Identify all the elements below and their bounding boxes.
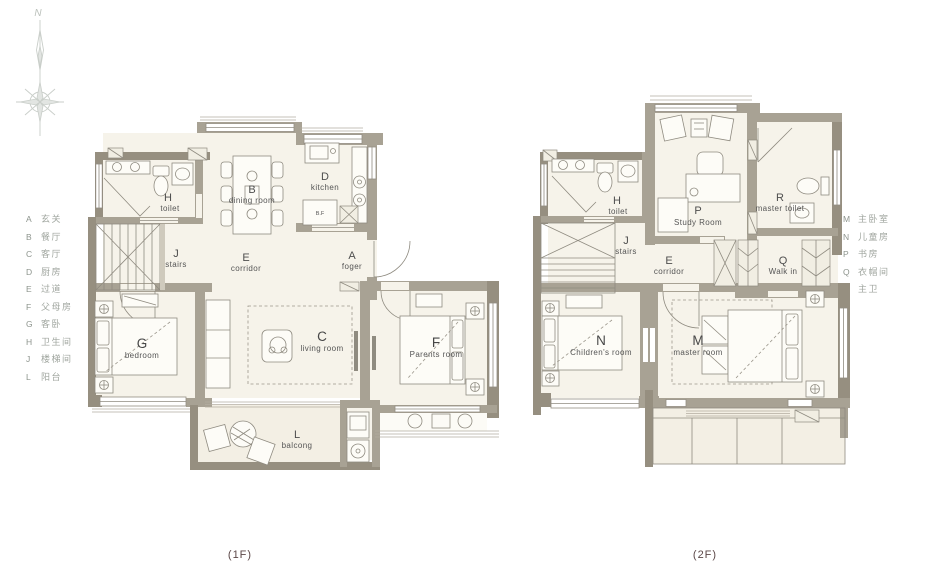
room-label-parents-key: F <box>432 335 440 350</box>
legend-label: 客卧 <box>41 319 62 329</box>
room-label-kitchen-key: D <box>321 171 329 183</box>
room-label-study-key: P <box>694 205 701 217</box>
room-label-toilet-1f-name: toilet <box>160 204 180 213</box>
room-label-children-name: Children's room <box>570 348 632 357</box>
legend-item: F父母房 <box>26 299 73 317</box>
room-label-master-toilet-key: R <box>776 192 784 204</box>
legend-label: 衣帽间 <box>858 267 890 277</box>
legend-key: A <box>26 211 41 229</box>
legend-key: J <box>26 351 41 369</box>
legend-label: 客厅 <box>41 249 62 259</box>
legend-item: B餐厅 <box>26 229 73 247</box>
floor1-caption: (1F) <box>200 549 280 561</box>
legend-key: E <box>26 281 41 299</box>
room-label-foyer-name: foger <box>342 262 362 271</box>
legend-item: D厨房 <box>26 264 73 282</box>
room-label-master-key: M <box>692 333 703 348</box>
legend-item: C客厅 <box>26 246 73 264</box>
legend-label: 餐厅 <box>41 232 62 242</box>
legend-item: G客卧 <box>26 316 73 334</box>
room-label-stairs-1f-key: J <box>173 248 179 260</box>
room-label-master-name: master room <box>673 348 722 357</box>
legend-label: 楼梯间 <box>41 354 73 364</box>
legend-item: E过道 <box>26 281 73 299</box>
room-label-corridor-1f-key: E <box>242 252 249 264</box>
room-label-balcony-key: L <box>294 429 300 441</box>
room-label-bedroom-key: G <box>137 336 148 351</box>
legend-key: F <box>26 299 41 317</box>
legend-label: 主卫 <box>858 284 879 294</box>
room-label-toilet-2f-key: H <box>613 195 621 207</box>
room-label-toilet-1f-key: H <box>164 192 172 204</box>
legend-item: A玄关 <box>26 211 73 229</box>
room-label-stairs-2f-key: J <box>623 235 629 247</box>
legend-item: J楼梯间 <box>26 351 73 369</box>
room-label-foyer-key: A <box>348 250 356 262</box>
room-label-kitchen-name: kitchen <box>311 183 339 192</box>
legend-label: 卫生间 <box>41 337 73 347</box>
legend-key: H <box>26 334 41 352</box>
legend-label: 父母房 <box>41 302 73 312</box>
fridge-label: B.F <box>316 211 325 217</box>
room-label-children-key: N <box>596 333 606 348</box>
room-label-living-name: living room <box>300 344 343 353</box>
floorplan-page: N A玄关 B餐厅 C客厅 D厨房 E过道 F父母房 G客卧 H卫生间 J楼梯间… <box>0 0 934 572</box>
legend-label: 儿童房 <box>858 232 890 242</box>
room-label-stairs-1f-name: stairs <box>165 260 187 269</box>
room-label-bedroom-name: bedroom <box>125 351 159 360</box>
legend-label: 主卧室 <box>858 214 890 224</box>
legend-key: L <box>26 369 41 387</box>
room-label-toilet-2f-name: toilet <box>608 207 628 216</box>
legend-label: 过道 <box>41 284 62 294</box>
legend-label: 阳台 <box>41 372 62 382</box>
room-label-stairs-2f-name: stairs <box>615 247 637 256</box>
room-label-balcony-name: balcong <box>282 441 313 450</box>
room-label-dining-name: dining room <box>229 196 275 205</box>
room-label-master-toilet-name: master toilet <box>756 204 805 213</box>
legend-label: 书房 <box>858 249 879 259</box>
room-label-living-key: C <box>317 329 327 344</box>
room-label-dining-key: B <box>248 184 255 196</box>
compass-rose: N <box>8 2 72 142</box>
floorplan-1f: B.F <box>80 108 510 480</box>
room-label-study-name: Study Room <box>674 218 722 227</box>
legend-key: D <box>26 264 41 282</box>
legend-key: G <box>26 316 41 334</box>
legend-item: H卫生间 <box>26 334 73 352</box>
room-label-corridor-2f-name: corridor <box>654 267 684 276</box>
legend-1f: A玄关 B餐厅 C客厅 D厨房 E过道 F父母房 G客卧 H卫生间 J楼梯间 L… <box>26 211 73 386</box>
room-label-parents-name: Parents room <box>410 350 463 359</box>
legend-label: 厨房 <box>41 267 62 277</box>
legend-item: L阳台 <box>26 369 73 387</box>
legend-key: B <box>26 229 41 247</box>
room-label-walkin-key: Q <box>779 255 788 267</box>
room-label-corridor-1f-name: corridor <box>231 264 261 273</box>
compass-north-label: N <box>34 8 42 19</box>
floorplan-2f: H toilet J stairs E corridor P Study Roo… <box>528 80 858 480</box>
room-label-corridor-2f-key: E <box>665 255 672 267</box>
legend-label: 玄关 <box>41 214 62 224</box>
room-label-walkin-name: Walk in <box>769 267 798 276</box>
floor2-caption: (2F) <box>665 549 745 561</box>
legend-key: C <box>26 246 41 264</box>
